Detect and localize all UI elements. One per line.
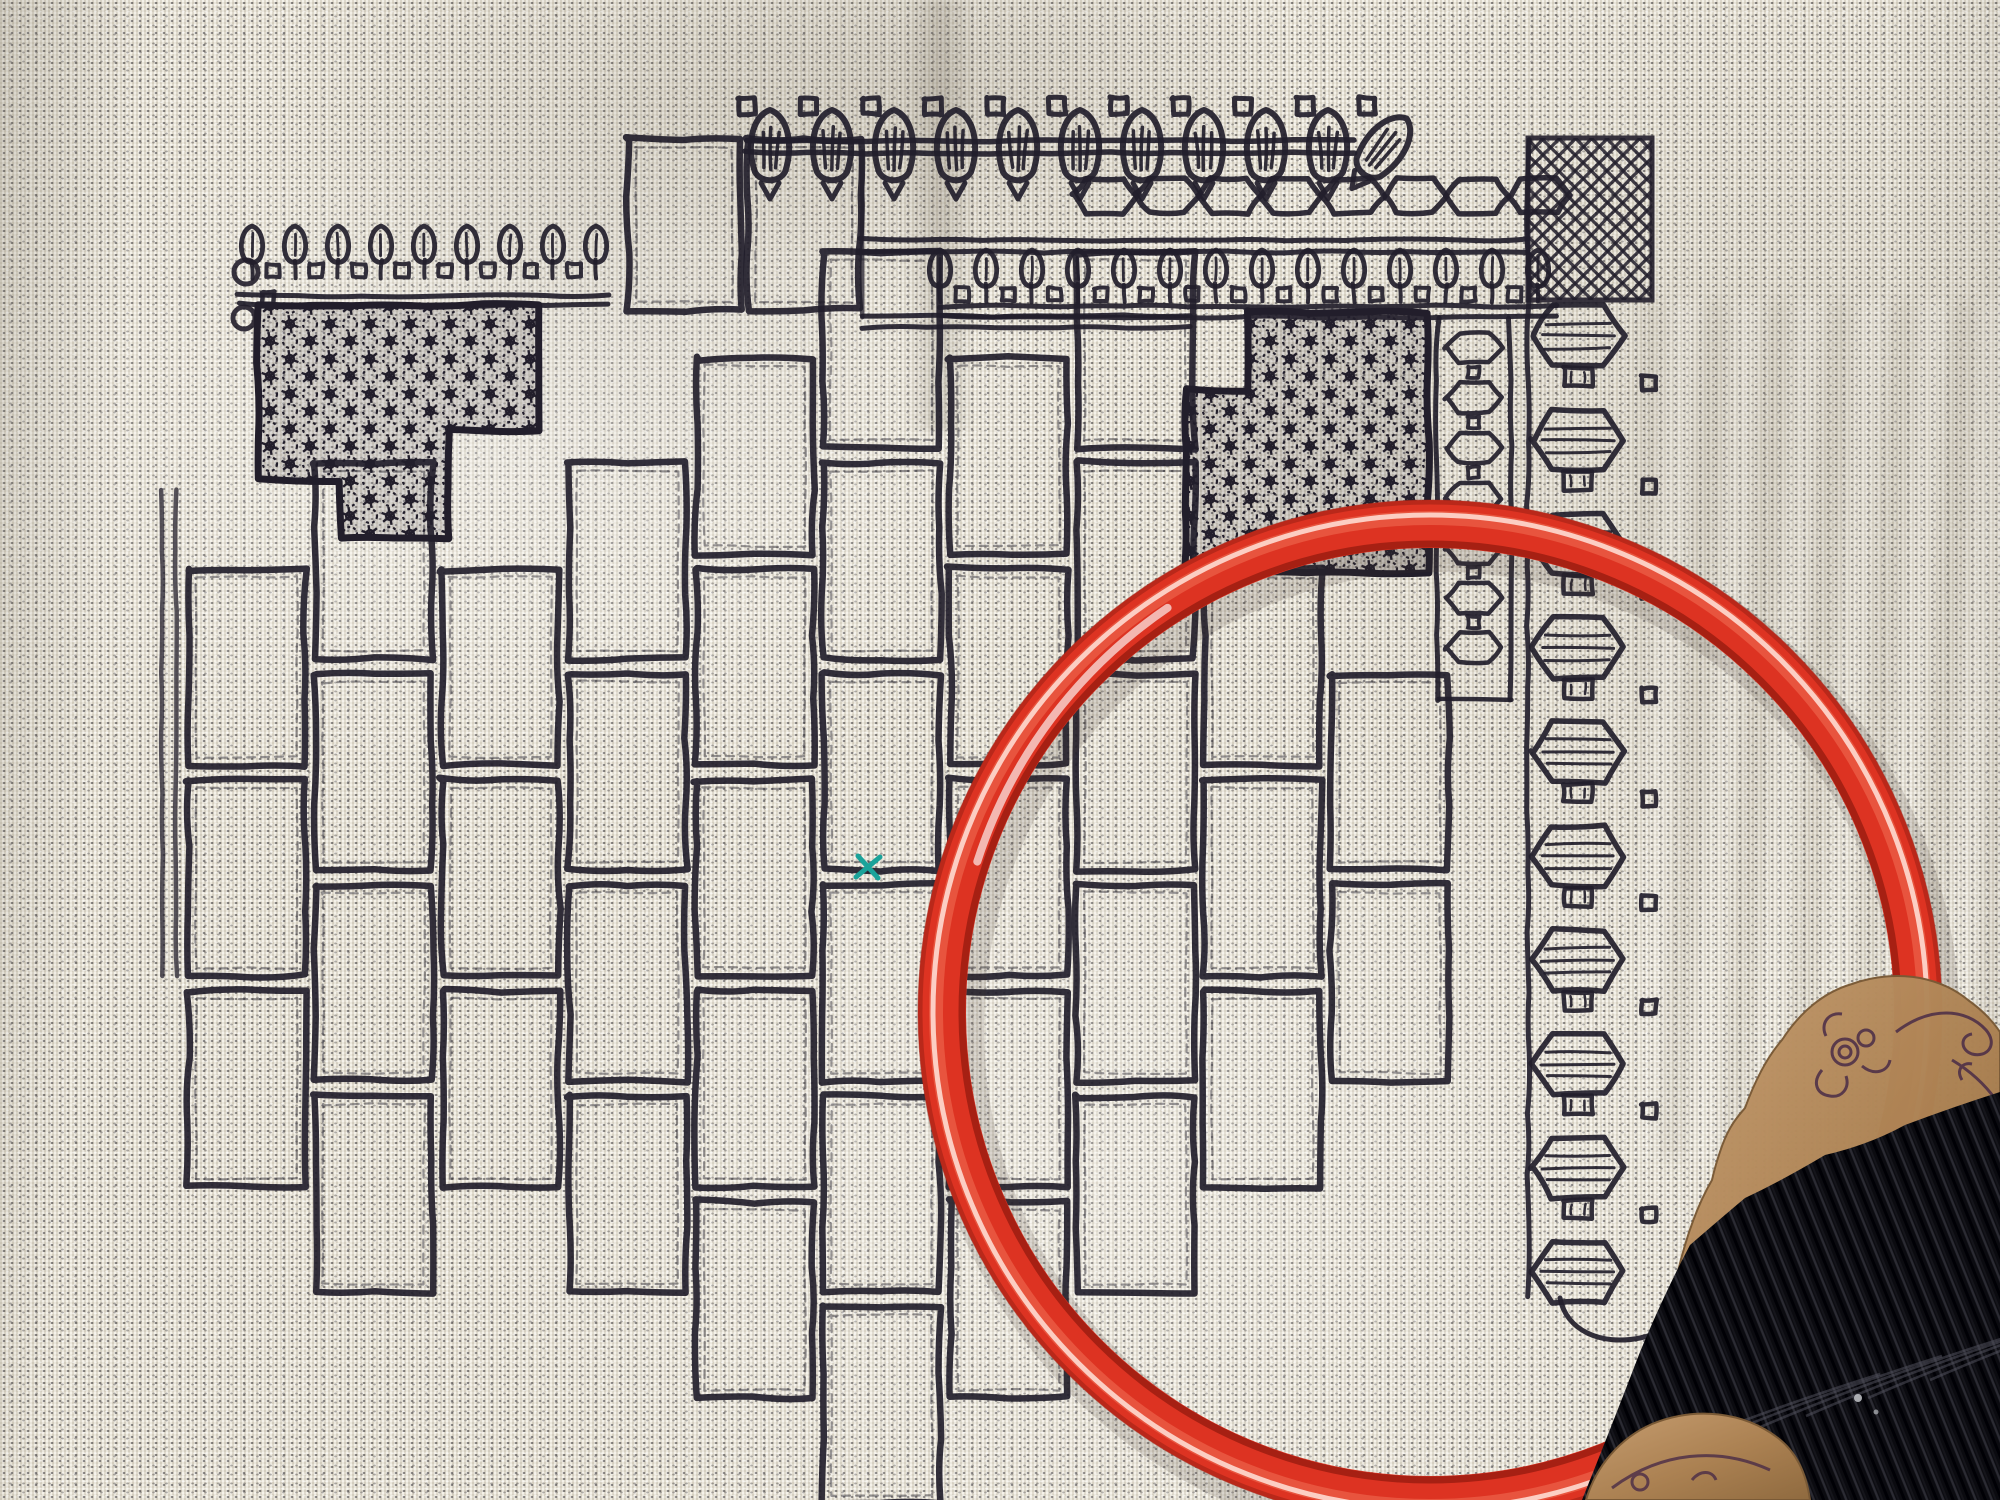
dense-fill-left [257, 304, 539, 539]
bud-row-right [929, 250, 1548, 303]
embroidery-photo: Fo [0, 0, 2000, 1500]
photo-stage: Fo [0, 0, 2000, 1500]
teal-marker-stitch [856, 856, 880, 878]
